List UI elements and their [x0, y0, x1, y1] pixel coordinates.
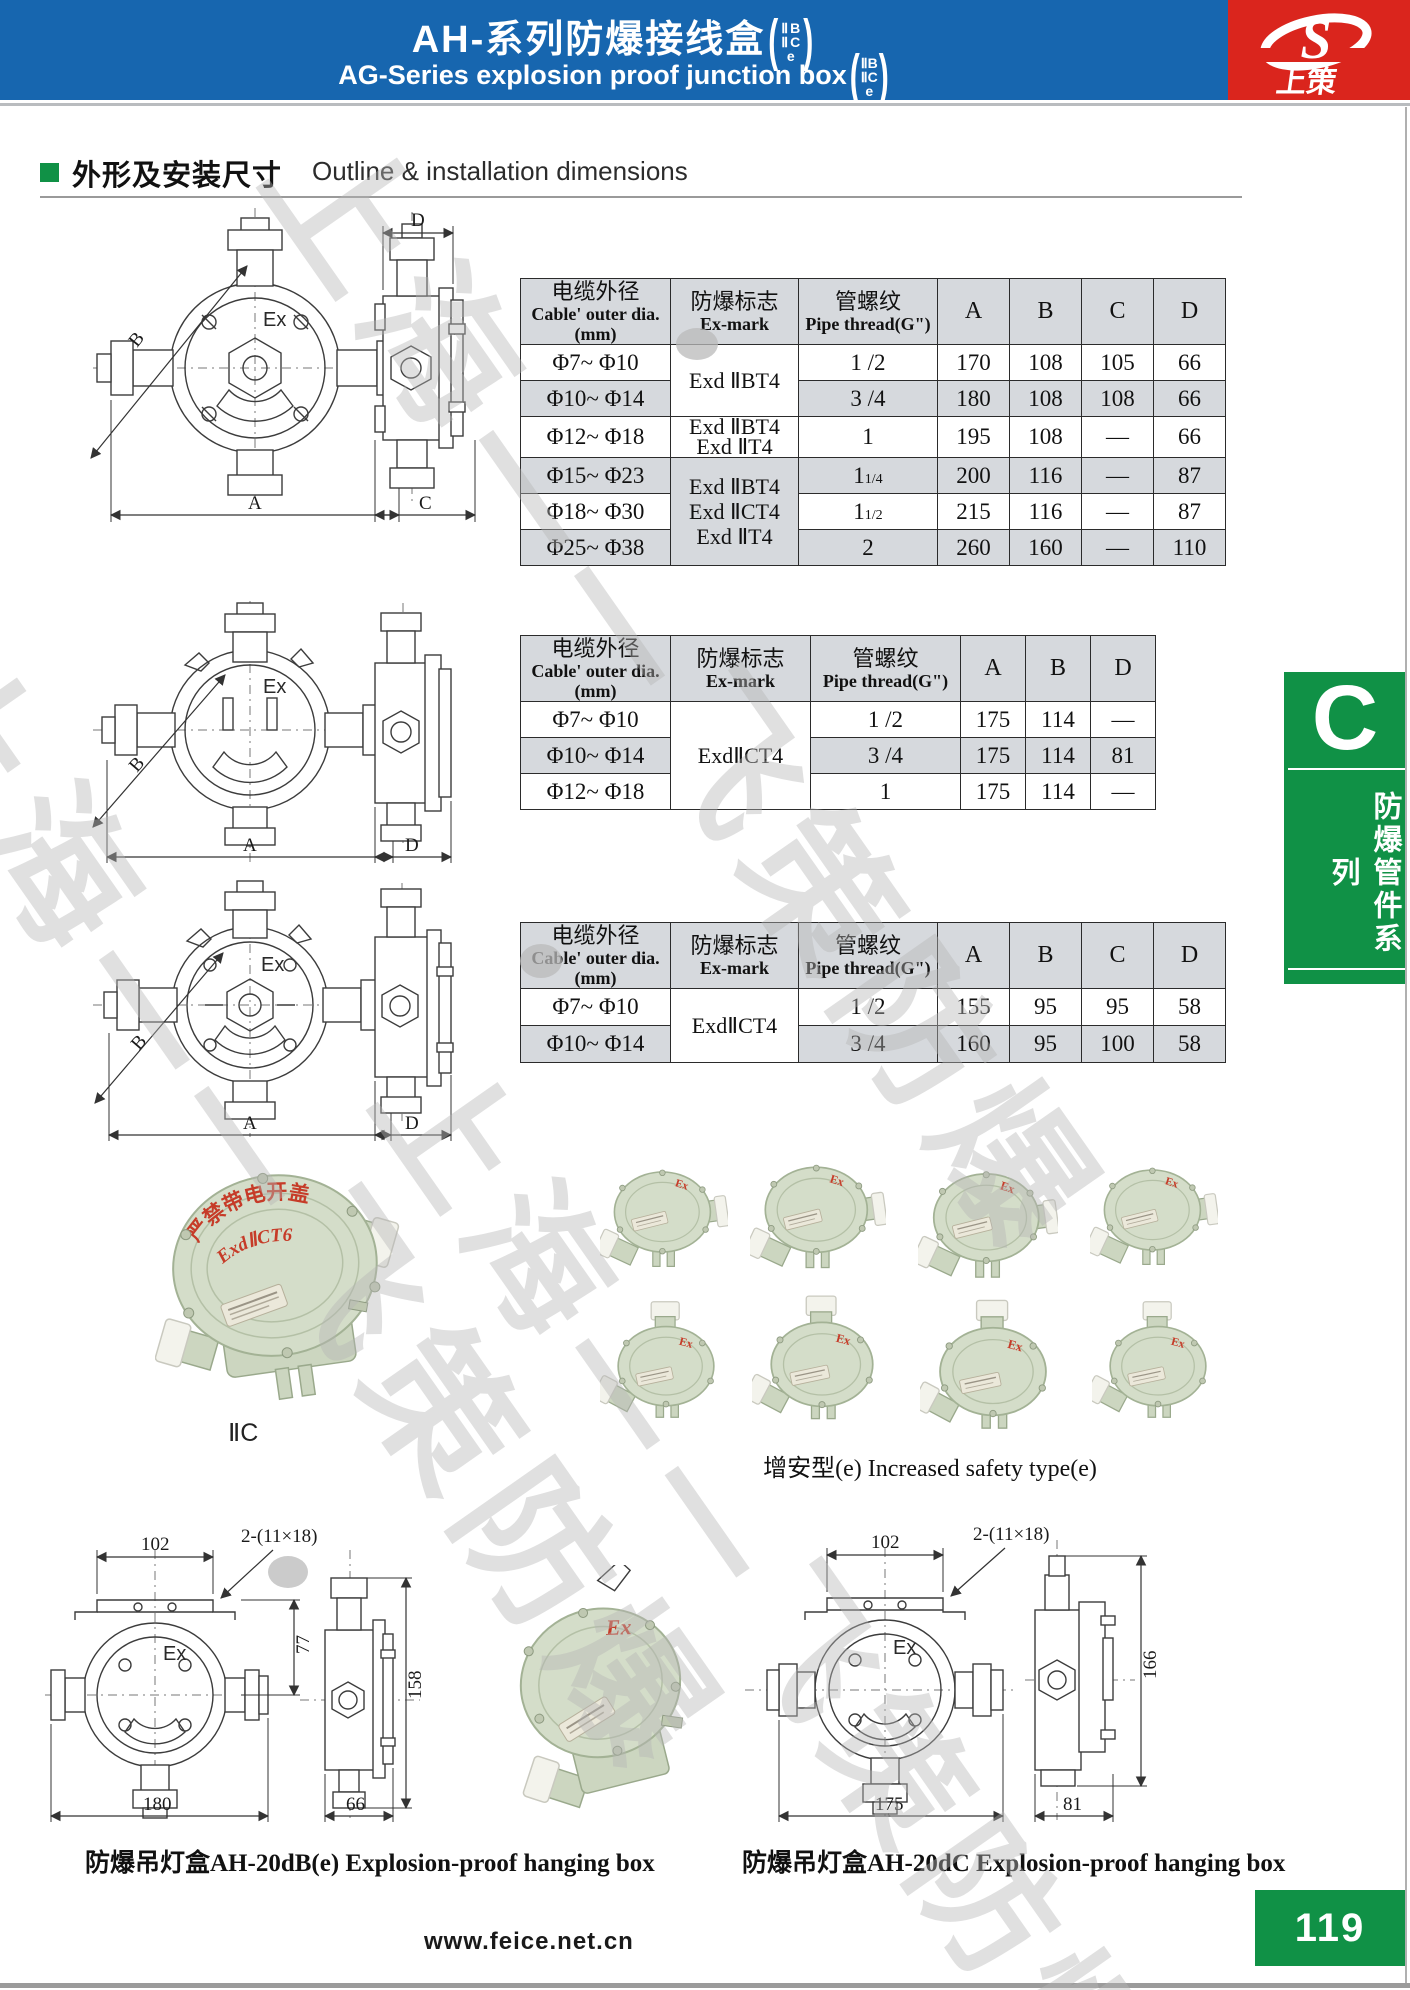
- drawing-hanging-box-AH-20dB-side: 158 66: [300, 1520, 500, 1840]
- dim-c: C: [419, 493, 432, 514]
- table-row: Φ18~ Φ30 11/2 215 116 — 87: [521, 494, 1226, 530]
- side-tab-letter: C: [1284, 666, 1406, 771]
- drawing-small-junction-box-IIC: Ex A B D: [45, 875, 495, 1165]
- caption-ah20dc: 防爆吊灯盒AH-20dC Explosion-proof hanging box: [742, 1843, 1285, 1879]
- section-title-zh: 外形及安装尺寸: [72, 152, 282, 194]
- table-row: Φ10~ Φ14 3 /4 180 108 108 66: [521, 381, 1226, 417]
- product-photos-grid: Ex: [600, 1150, 1260, 1450]
- spec-table-1: 电缆外径Cable' outer dia.(mm) 防爆标志Ex-mark 管螺…: [520, 278, 1226, 566]
- table-row: 电缆外径Cable' outer dia.(mm) 防爆标志Ex-mark 管螺…: [521, 923, 1226, 989]
- table-row: Φ10~ Φ14 3 /4 175 114 81: [521, 738, 1156, 774]
- drawing-4way-junction-box-IIB: Ex A B D C: [45, 200, 495, 535]
- dim-a: A: [248, 493, 262, 514]
- drawing-hanging-box-AH-20dC: Ex 102 2-(11×18) 175 166 81: [735, 1520, 1215, 1840]
- photo-ex-mark: Ex: [604, 1614, 632, 1640]
- dim-81: 81: [1063, 1794, 1082, 1815]
- side-tab-rule: [1288, 768, 1406, 770]
- page-number: 119: [1255, 1890, 1405, 1966]
- dim-b: B: [125, 753, 149, 776]
- section-title-en: Outline & installation dimensions: [312, 156, 688, 187]
- product-photo-large-junction-box: 严禁带电开盖 ExdⅡCT6: [155, 1160, 405, 1415]
- table-row: Φ7~ Φ10 Exd ⅡBT4 1 /2 170 108 105 66: [521, 345, 1226, 381]
- page-border: [1405, 107, 1407, 1985]
- dim-158: 158: [405, 1671, 426, 1700]
- ex-mark-label: Ex: [261, 954, 284, 976]
- brand-name: 上策: [1274, 65, 1340, 99]
- section-rule: [40, 196, 1242, 198]
- table-row: Φ7~ Φ10 ExdⅡCT4 1 /2 175 114 —: [521, 702, 1156, 738]
- footer-rule: [0, 1983, 1410, 1988]
- ex-mark-label: Ex: [263, 309, 286, 331]
- ex-mark-label: Ex: [893, 1637, 916, 1659]
- table-row: Φ10~ Φ14 3 /4 160 95 100 58: [521, 1026, 1226, 1063]
- ex-mark-label: Ex: [163, 1643, 186, 1665]
- spec-table-2: 电缆外径Cable' outer dia.(mm) 防爆标志Ex-mark 管螺…: [520, 635, 1156, 810]
- drawing-junction-box-IIC: Ex A B D: [45, 595, 495, 885]
- section-bullet-icon: [40, 163, 59, 182]
- page-subtitle: AG-Series explosion proof junction box(Ⅱ…: [0, 56, 1228, 98]
- page-header: AH-系列防爆接线盒(ⅡBⅡCe) AG-Series explosion pr…: [0, 0, 1410, 100]
- table-row: Φ12~ Φ18 1 175 114 —: [521, 774, 1156, 810]
- dim-a: A: [243, 1113, 257, 1134]
- table-row: Φ25~ Φ38 2 260 160 — 110: [521, 530, 1226, 566]
- caption-ah20db: 防爆吊灯盒AH-20dB(e) Explosion-proof hanging …: [85, 1843, 655, 1879]
- dim-102: 102: [871, 1532, 900, 1553]
- subtitle-suffix: (ⅡBⅡCe): [849, 56, 890, 98]
- dim-slot: 2-(11×18): [973, 1524, 1050, 1545]
- table-row: Φ15~ Φ23 Exd ⅡBT4Exd ⅡCT4Exd ⅡT4 11/4 20…: [521, 458, 1226, 494]
- side-tab-label: 防爆管件系列: [1284, 780, 1406, 966]
- table-row: Φ12~ Φ18 Exd ⅡBT4Exd ⅡT4 1 195 108 — 66: [521, 417, 1226, 458]
- table-row: 电缆外径Cable' outer dia.(mm) 防爆标志Ex-mark 管螺…: [521, 279, 1226, 345]
- dim-d: D: [405, 1113, 419, 1134]
- dim-d: D: [405, 835, 419, 856]
- header-rule: [0, 103, 1410, 106]
- catalog-page: AH-系列防爆接线盒(ⅡBⅡCe) AG-Series explosion pr…: [0, 0, 1410, 1990]
- brand-logo-icon: S 上策: [1228, 0, 1410, 100]
- header-titles: AH-系列防爆接线盒(ⅡBⅡCe) AG-Series explosion pr…: [0, 0, 1228, 100]
- page-title-en: AG-Series explosion proof junction box: [338, 60, 847, 90]
- side-tab-rule: [1288, 968, 1406, 970]
- dim-a: A: [243, 835, 257, 856]
- table-row: 电缆外径Cable' outer dia.(mm) 防爆标志Ex-mark 管螺…: [521, 636, 1156, 702]
- ex-mark-label: Ex: [263, 676, 286, 698]
- svg-text:S: S: [1300, 9, 1331, 71]
- dim-d: D: [411, 210, 425, 231]
- brand-logo: S 上策: [1228, 0, 1410, 100]
- dim-66: 66: [346, 1794, 365, 1815]
- photo-label-iic: ⅡC: [228, 1418, 258, 1448]
- page-title-zh: AH-系列防爆接线盒: [412, 19, 766, 61]
- increased-safety-caption: 增安型(e) Increased safety type(e): [600, 1448, 1260, 1483]
- dim-175: 175: [875, 1794, 904, 1815]
- dim-166: 166: [1140, 1651, 1161, 1680]
- dim-180: 180: [143, 1794, 172, 1815]
- page-title: AH-系列防爆接线盒(ⅡBⅡCe): [0, 8, 1228, 63]
- side-tab-section-c: C 防爆管件系列: [1284, 672, 1406, 984]
- product-photo-hanging-box: Ex: [505, 1565, 695, 1835]
- dim-102: 102: [141, 1534, 170, 1555]
- footer-url: www.feice.net.cn: [424, 1928, 634, 1956]
- dim-b: B: [127, 1031, 151, 1054]
- table-row: Φ7~ Φ10 ExdⅡCT4 1 /2 155 95 95 58: [521, 989, 1226, 1026]
- spec-table-3: 电缆外径Cable' outer dia.(mm) 防爆标志Ex-mark 管螺…: [520, 922, 1226, 1063]
